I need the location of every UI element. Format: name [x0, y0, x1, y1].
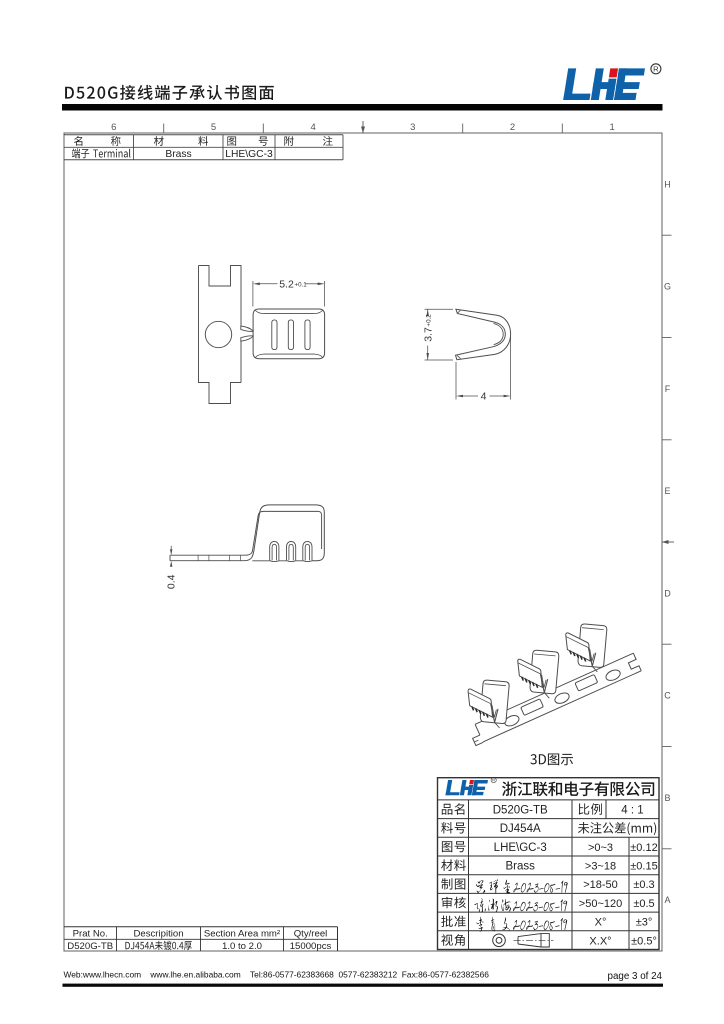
svg-text:Brass: Brass — [505, 861, 535, 873]
svg-text:Web:www.lhecn.com www.lhe.e: Web:www.lhecn.com www.lhe.en.alibaba.com… — [64, 970, 490, 980]
svg-text:LHE\GC-3: LHE\GC-3 — [225, 149, 273, 160]
svg-text:Qty/reel: Qty/reel — [294, 929, 328, 940]
svg-text:±0.12: ±0.12 — [630, 842, 657, 854]
svg-text:+0.1: +0.1 — [295, 281, 308, 288]
svg-text:5: 5 — [211, 122, 216, 133]
svg-text:15000pcs: 15000pcs — [290, 941, 332, 952]
svg-text:4: 4 — [311, 122, 316, 133]
svg-text:G: G — [664, 282, 671, 292]
svg-text:H: H — [664, 179, 671, 189]
svg-text:±0.3: ±0.3 — [633, 879, 654, 891]
svg-text:B: B — [664, 793, 670, 803]
svg-text:E: E — [664, 486, 670, 496]
svg-text:6: 6 — [111, 122, 116, 133]
svg-text:1.0 to 2.0: 1.0 to 2.0 — [222, 941, 262, 952]
svg-text:A: A — [664, 895, 670, 905]
svg-text:D520G-TB: D520G-TB — [493, 804, 548, 816]
svg-text:R: R — [653, 65, 659, 74]
svg-text:0.4: 0.4 — [165, 574, 177, 589]
svg-text:+0.2: +0.2 — [425, 314, 432, 327]
svg-text:5.2: 5.2 — [279, 278, 294, 290]
svg-text:page 3 of 24: page 3 of 24 — [608, 971, 663, 982]
svg-text:Descripition: Descripition — [133, 929, 183, 940]
svg-text:±0.5°: ±0.5° — [631, 935, 657, 947]
svg-text:DJ454A: DJ454A — [500, 823, 541, 835]
svg-text:>0~3: >0~3 — [588, 842, 613, 854]
svg-text:>50~120: >50~120 — [579, 898, 622, 910]
svg-text:Section Area mm²: Section Area mm² — [204, 929, 281, 940]
svg-text:±3°: ±3° — [636, 917, 653, 929]
svg-text:±0.5: ±0.5 — [633, 898, 654, 910]
svg-text:>3~18: >3~18 — [585, 861, 616, 873]
svg-text:4: 4 — [481, 390, 487, 402]
svg-text:2: 2 — [510, 122, 515, 133]
svg-text:Prat No.: Prat No. — [73, 929, 108, 940]
svg-text:X°: X° — [595, 917, 607, 929]
svg-text:C: C — [664, 691, 671, 701]
svg-text:D520G-TB: D520G-TB — [67, 941, 113, 952]
svg-text:4 : 1: 4 : 1 — [621, 804, 643, 816]
svg-text:>18-50: >18-50 — [583, 879, 618, 891]
svg-text:1: 1 — [610, 122, 615, 133]
svg-text:X.X°: X.X° — [589, 935, 611, 947]
svg-text:3: 3 — [410, 122, 415, 133]
svg-text:3.7: 3.7 — [422, 327, 434, 342]
svg-text:F: F — [665, 384, 671, 394]
svg-text:Brass: Brass — [165, 149, 191, 160]
svg-text:D: D — [664, 588, 671, 598]
svg-text:LHE\GC-3: LHE\GC-3 — [494, 842, 547, 854]
svg-text:±0.15: ±0.15 — [630, 861, 657, 873]
